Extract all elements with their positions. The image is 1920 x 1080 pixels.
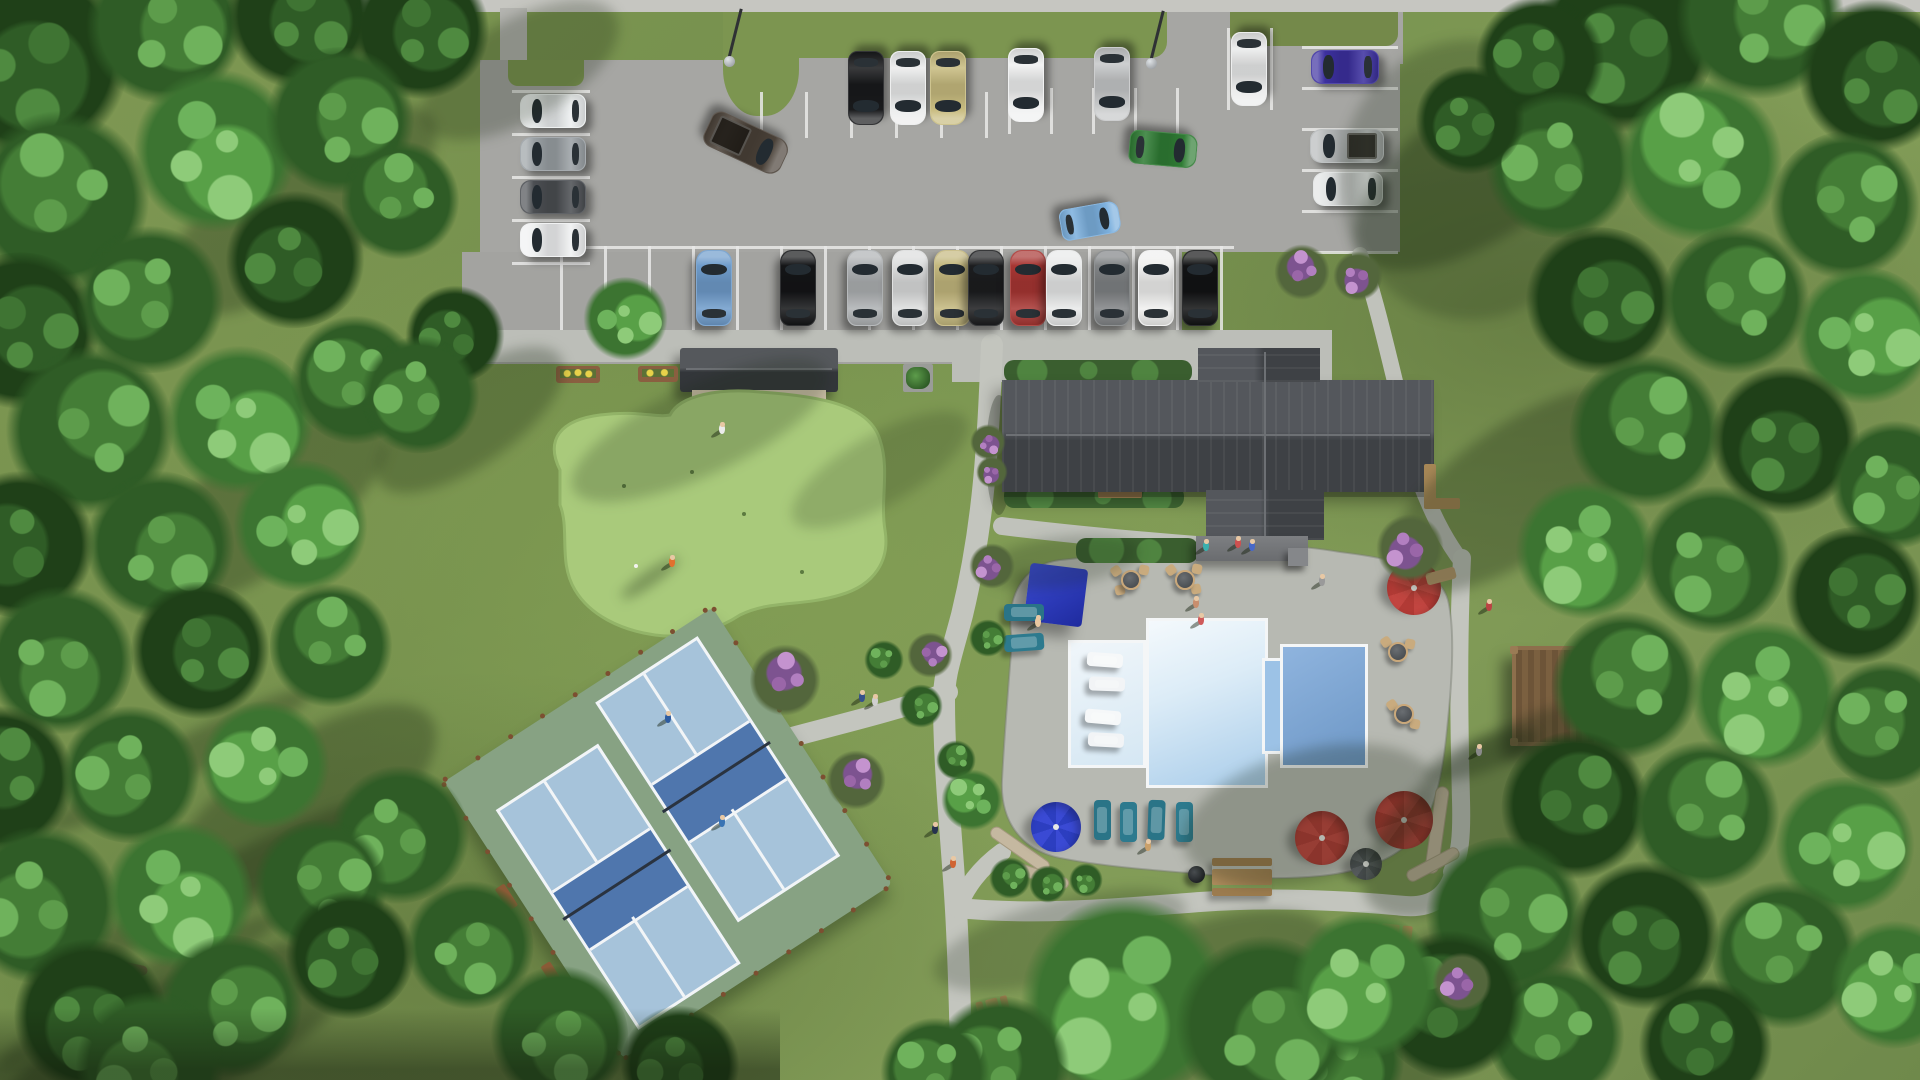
umbrella-blue	[1031, 802, 1081, 852]
car-windshield	[532, 228, 542, 252]
umbrella-finial	[1053, 824, 1059, 830]
person-head	[1320, 574, 1325, 579]
person-head	[1036, 615, 1041, 620]
pavilion-post	[1510, 646, 1518, 654]
non-volley-zone	[552, 828, 688, 952]
lounger-pad	[1011, 636, 1037, 649]
parked-car-white	[1046, 250, 1082, 326]
person-head	[720, 422, 725, 427]
car-rear-window	[898, 309, 921, 318]
car-rear-window	[572, 186, 580, 208]
person-head	[1487, 599, 1492, 604]
person-head	[1199, 613, 1204, 618]
parked-car-black	[968, 250, 1004, 326]
car-rear-window	[1237, 39, 1260, 48]
car-windshield	[1099, 264, 1125, 276]
parked-car-red	[1010, 250, 1046, 326]
car-windshield	[1015, 264, 1041, 276]
parked-car-white	[1231, 32, 1267, 106]
person-head	[873, 694, 878, 699]
ledge-lounger	[1084, 708, 1121, 725]
car-rear-window	[1188, 309, 1211, 318]
car-body	[520, 137, 586, 171]
lounger-pad	[1095, 679, 1118, 689]
person-head	[1477, 744, 1482, 749]
person-head	[1236, 536, 1241, 541]
person-head	[670, 555, 675, 560]
person-head	[1250, 539, 1255, 544]
driving-car-green	[1128, 129, 1199, 169]
car-body	[780, 250, 816, 326]
parked-car-silver	[1094, 47, 1130, 121]
lounger-pad	[1093, 655, 1117, 666]
person-head	[1194, 596, 1199, 601]
car-windshield	[897, 264, 923, 276]
parked-car-white	[1138, 250, 1174, 326]
car-body	[1138, 250, 1174, 326]
car-rear-window	[702, 309, 725, 318]
lounger-pad	[1094, 735, 1118, 745]
car-windshield	[1099, 96, 1125, 108]
lounger-pad	[1123, 809, 1134, 835]
bottom-shade-vignette	[0, 1008, 780, 1080]
car-body	[520, 223, 586, 257]
ledge-lounger	[1089, 676, 1125, 691]
lounger-pad	[1091, 712, 1115, 723]
car-windshield	[935, 100, 961, 112]
cafe-table	[1175, 570, 1195, 590]
car-rear-window	[940, 309, 963, 318]
center-service-line	[631, 916, 685, 997]
car-rear-window	[854, 58, 877, 67]
car-rear-window	[1014, 55, 1037, 64]
clubhouse-ridge-cross	[1264, 352, 1266, 536]
car-rear-window	[1100, 309, 1123, 318]
car-body	[934, 250, 970, 326]
parked-car-gold	[930, 51, 966, 125]
teal-lounger	[1120, 802, 1137, 842]
lounger-pad	[1097, 807, 1108, 833]
car-body	[1008, 48, 1044, 122]
car-body	[848, 51, 884, 125]
car-body	[696, 250, 732, 326]
car-windshield	[1236, 81, 1262, 93]
car-windshield	[785, 264, 811, 276]
person-head	[933, 822, 938, 827]
car-windshield	[532, 185, 542, 209]
car-rear-window	[572, 229, 580, 251]
car-rear-window	[1364, 56, 1372, 78]
person-head	[1204, 539, 1209, 544]
entry-kiosk	[1288, 548, 1308, 566]
parked-car-silver	[520, 137, 586, 171]
car-rear-window	[936, 58, 959, 67]
car-body	[930, 51, 966, 125]
parked-car-charcoal	[520, 180, 586, 214]
parked-car-white	[520, 223, 586, 257]
car-windshield	[1013, 97, 1039, 109]
clubhouse-ridge-main	[1006, 434, 1430, 436]
ledge-lounger	[1087, 652, 1124, 668]
person-head	[720, 815, 725, 820]
car-rear-window	[786, 309, 809, 318]
car-rear-window	[853, 309, 876, 318]
car-windshield	[1323, 134, 1335, 158]
pool-main-basin	[1146, 618, 1268, 788]
car-body	[847, 250, 883, 326]
cafe-table	[1121, 570, 1141, 590]
car-windshield	[973, 264, 999, 276]
parked-car-gray	[1094, 250, 1130, 326]
car-rear-window	[1016, 309, 1039, 318]
car-body	[1128, 129, 1199, 169]
teal-lounger	[1094, 800, 1111, 840]
car-body	[1094, 47, 1130, 121]
car-body	[890, 51, 926, 125]
car-body	[1231, 32, 1267, 106]
picnic-bench	[1212, 888, 1272, 896]
ledge-lounger	[1088, 732, 1125, 748]
lounger-pad	[1150, 807, 1162, 833]
lounger-pad	[1011, 607, 1037, 618]
car-rear-window	[1052, 309, 1075, 318]
person-head	[1146, 839, 1151, 844]
car-rear-window	[572, 100, 580, 122]
center-service-line	[731, 809, 785, 890]
car-body	[1311, 50, 1379, 84]
person-head	[951, 856, 956, 861]
parked-car-silver	[847, 250, 883, 326]
parked-car-black	[1182, 250, 1218, 326]
car-body	[1182, 250, 1218, 326]
cafe-table	[1388, 642, 1408, 662]
parked-car-black	[848, 51, 884, 125]
parked-car-black	[780, 250, 816, 326]
parked-car-white	[890, 51, 926, 125]
car-rear-window	[572, 143, 580, 165]
parked-car-gold	[934, 250, 970, 326]
cafe-table	[1394, 704, 1414, 724]
person-head	[860, 690, 865, 695]
parked-car-white	[892, 250, 928, 326]
car-body	[1010, 250, 1046, 326]
car-windshield	[852, 264, 878, 276]
car-rear-window	[1144, 309, 1167, 318]
car-rear-window	[1100, 54, 1123, 63]
center-service-line	[544, 781, 598, 862]
car-windshield	[1187, 264, 1213, 276]
car-rear-window	[896, 58, 919, 67]
person-head	[666, 711, 671, 716]
car-windshield	[701, 264, 727, 276]
car-body	[892, 250, 928, 326]
parked-car-purple	[1311, 50, 1379, 84]
car-windshield	[532, 142, 542, 166]
car-windshield	[1323, 55, 1334, 79]
car-body	[1094, 250, 1130, 326]
aerial-site-render	[0, 0, 1920, 1080]
parked-car-blue	[696, 250, 732, 326]
car-windshield	[853, 100, 879, 112]
car-rear-window	[974, 309, 997, 318]
car-windshield	[895, 100, 921, 112]
clubhouse-roof-north-wing	[1198, 348, 1320, 382]
car-windshield	[939, 264, 965, 276]
clubhouse-roof-main	[1002, 380, 1434, 492]
parked-car-white	[1008, 48, 1044, 122]
car-body	[520, 180, 586, 214]
car-windshield	[1143, 264, 1169, 276]
car-body	[968, 250, 1004, 326]
teal-lounger	[1147, 800, 1165, 841]
car-body	[1046, 250, 1082, 326]
car-windshield	[1051, 264, 1077, 276]
teal-lounger	[1003, 632, 1044, 652]
